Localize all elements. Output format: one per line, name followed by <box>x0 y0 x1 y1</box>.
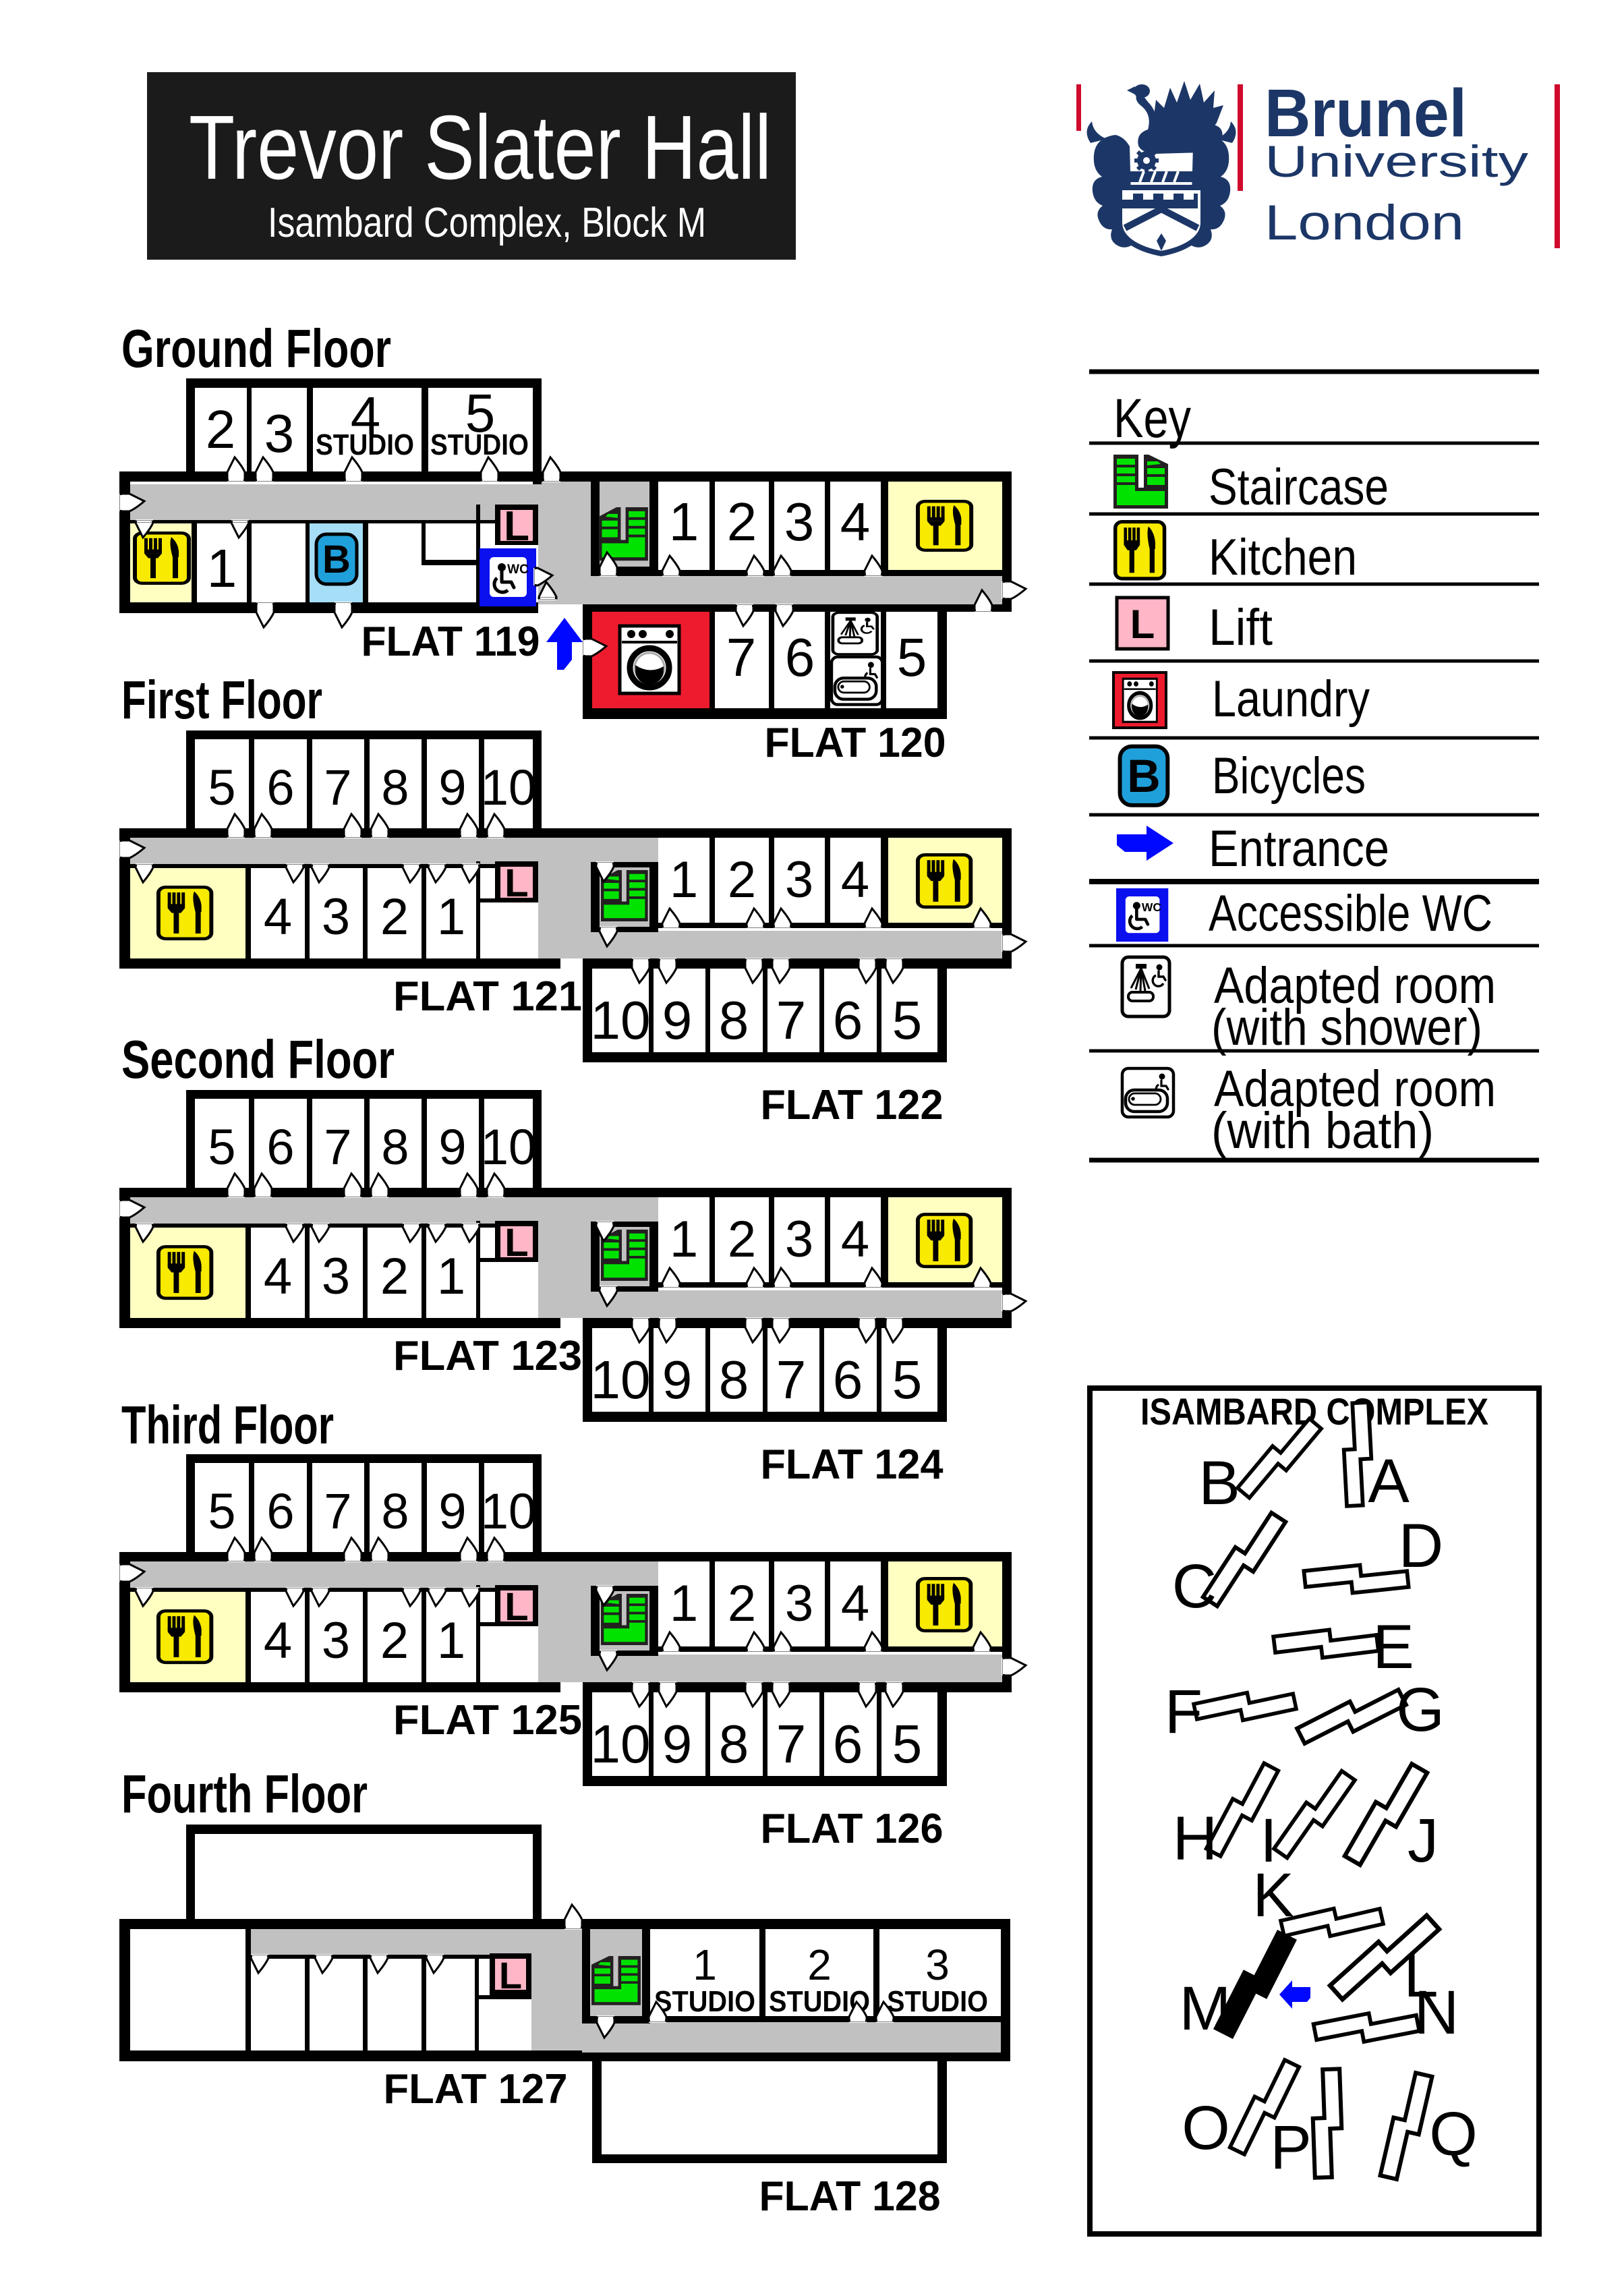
svg-text:L: L <box>1130 602 1155 647</box>
svg-text:7: 7 <box>324 1119 351 1175</box>
svg-text:Lift: Lift <box>1209 599 1273 656</box>
svg-text:10: 10 <box>481 759 536 815</box>
svg-text:2: 2 <box>807 1941 832 1989</box>
svg-text:Trevor Slater Hall: Trevor Slater Hall <box>189 96 772 198</box>
svg-text:D: D <box>1399 1512 1443 1580</box>
svg-text:4: 4 <box>841 1575 869 1632</box>
svg-text:L: L <box>499 1954 522 1997</box>
svg-text:1: 1 <box>437 1248 465 1305</box>
svg-text:J: J <box>1408 1806 1439 1875</box>
svg-text:10: 10 <box>591 990 651 1050</box>
svg-text:FLAT 122: FLAT 122 <box>761 1082 944 1128</box>
svg-text:2: 2 <box>380 888 409 946</box>
svg-text:Key: Key <box>1113 388 1191 449</box>
svg-text:FLAT 120: FLAT 120 <box>765 720 946 766</box>
svg-text:6: 6 <box>266 759 294 815</box>
svg-text:10: 10 <box>591 1350 651 1410</box>
svg-text:4: 4 <box>840 492 871 552</box>
svg-text:4: 4 <box>841 1211 869 1268</box>
svg-text:FLAT 126: FLAT 126 <box>761 1806 944 1852</box>
svg-text:Staircase: Staircase <box>1209 459 1389 516</box>
svg-text:(with shower): (with shower) <box>1211 999 1482 1056</box>
svg-text:STUDIO: STUDIO <box>654 1985 755 2018</box>
svg-text:FLAT 123: FLAT 123 <box>393 1333 582 1379</box>
svg-text:3: 3 <box>785 851 813 909</box>
svg-text:9: 9 <box>438 759 466 815</box>
svg-text:L: L <box>504 1585 528 1629</box>
svg-text:University: University <box>1265 136 1528 186</box>
svg-text:2: 2 <box>727 492 757 552</box>
svg-text:Kitchen: Kitchen <box>1209 529 1357 586</box>
svg-text:F: F <box>1165 1677 1202 1746</box>
svg-text:2: 2 <box>380 1612 409 1669</box>
svg-text:8: 8 <box>719 1714 749 1774</box>
svg-text:10: 10 <box>591 1714 651 1774</box>
svg-text:G: G <box>1396 1675 1445 1744</box>
svg-text:4: 4 <box>264 1612 292 1669</box>
svg-text:7: 7 <box>776 990 807 1050</box>
svg-text:FLAT 124: FLAT 124 <box>761 1441 944 1488</box>
svg-text:6: 6 <box>785 627 815 687</box>
svg-text:E: E <box>1372 1613 1414 1682</box>
svg-text:3: 3 <box>925 1941 950 1989</box>
svg-text:8: 8 <box>381 1483 409 1539</box>
svg-text:3: 3 <box>322 1248 350 1305</box>
svg-text:7: 7 <box>776 1350 807 1410</box>
svg-text:4: 4 <box>841 851 869 909</box>
svg-text:5: 5 <box>897 627 927 687</box>
svg-text:3: 3 <box>322 888 350 946</box>
svg-text:Fourth Floor: Fourth Floor <box>121 1764 368 1824</box>
svg-text:Second Floor: Second Floor <box>121 1029 395 1089</box>
svg-text:1: 1 <box>669 492 699 552</box>
svg-text:5: 5 <box>892 1714 923 1774</box>
svg-text:1: 1 <box>437 1612 465 1669</box>
svg-text:Laundry: Laundry <box>1212 670 1370 728</box>
svg-text:7: 7 <box>324 759 351 815</box>
svg-text:8: 8 <box>381 1119 409 1175</box>
svg-text:5: 5 <box>208 1483 235 1539</box>
svg-text:10: 10 <box>481 1483 536 1539</box>
svg-text:K: K <box>1252 1861 1294 1930</box>
svg-text:FLAT 125: FLAT 125 <box>393 1697 582 1744</box>
svg-text:2: 2 <box>728 1211 756 1268</box>
svg-text:5: 5 <box>892 1350 923 1410</box>
svg-text:9: 9 <box>438 1483 466 1539</box>
svg-text:L: L <box>504 1221 528 1265</box>
svg-text:O: O <box>1182 2094 1230 2162</box>
svg-text:6: 6 <box>833 1350 863 1410</box>
svg-text:8: 8 <box>381 759 409 815</box>
svg-text:1: 1 <box>437 888 465 946</box>
svg-text:H: H <box>1173 1804 1217 1873</box>
svg-text:2: 2 <box>728 1575 756 1632</box>
svg-text:7: 7 <box>776 1714 807 1774</box>
svg-text:3: 3 <box>322 1612 350 1669</box>
svg-text:9: 9 <box>662 990 693 1050</box>
svg-text:6: 6 <box>266 1483 294 1539</box>
svg-text:6: 6 <box>266 1119 294 1175</box>
svg-text:A: A <box>1368 1447 1410 1516</box>
svg-text:Q: Q <box>1429 2100 1478 2169</box>
svg-text:Bicycles: Bicycles <box>1212 747 1366 805</box>
svg-text:5: 5 <box>208 1119 235 1175</box>
svg-text:2: 2 <box>380 1248 409 1305</box>
svg-text:1: 1 <box>693 1941 717 1989</box>
svg-text:5: 5 <box>208 759 235 815</box>
svg-text:FLAT 127: FLAT 127 <box>384 2066 568 2113</box>
svg-text:London: London <box>1265 196 1464 250</box>
svg-text:Third Floor: Third Floor <box>121 1395 334 1455</box>
svg-text:B: B <box>1198 1449 1240 1518</box>
svg-text:3: 3 <box>264 403 295 463</box>
svg-text:9: 9 <box>662 1714 693 1774</box>
svg-text:8: 8 <box>719 1350 749 1410</box>
svg-text:L: L <box>504 503 529 550</box>
svg-text:6: 6 <box>833 990 863 1050</box>
svg-text:STUDIO: STUDIO <box>887 1985 988 2018</box>
svg-text:1: 1 <box>670 1211 698 1268</box>
svg-text:7: 7 <box>726 627 757 687</box>
svg-text:Ground Floor: Ground Floor <box>121 318 391 378</box>
svg-text:STUDIO: STUDIO <box>316 428 414 461</box>
svg-text:6: 6 <box>833 1714 863 1774</box>
svg-text:C: C <box>1172 1552 1217 1621</box>
svg-text:8: 8 <box>719 990 749 1050</box>
svg-text:9: 9 <box>662 1350 693 1410</box>
svg-text:(with bath): (with bath) <box>1211 1102 1434 1159</box>
svg-text:1: 1 <box>670 1575 698 1632</box>
svg-text:FLAT 121: FLAT 121 <box>393 973 582 1020</box>
svg-text:First Floor: First Floor <box>121 670 322 730</box>
svg-text:M: M <box>1180 1974 1231 2043</box>
svg-text:2: 2 <box>206 399 236 459</box>
svg-text:2: 2 <box>728 851 756 909</box>
svg-text:FLAT 119: FLAT 119 <box>361 619 540 665</box>
svg-text:3: 3 <box>784 492 815 552</box>
svg-text:7: 7 <box>324 1483 351 1539</box>
svg-text:N: N <box>1414 1978 1459 2047</box>
svg-text:Accessible WC: Accessible WC <box>1209 885 1492 942</box>
svg-text:4: 4 <box>264 1248 292 1305</box>
svg-text:Entrance: Entrance <box>1209 820 1389 878</box>
svg-text:L: L <box>504 861 528 905</box>
svg-text:10: 10 <box>481 1119 536 1175</box>
svg-text:FLAT 128: FLAT 128 <box>759 2173 941 2220</box>
svg-text:3: 3 <box>785 1575 813 1632</box>
svg-text:3: 3 <box>785 1211 813 1268</box>
svg-text:P: P <box>1270 2113 1311 2182</box>
svg-text:9: 9 <box>438 1119 466 1175</box>
svg-text:5: 5 <box>892 990 923 1050</box>
svg-text:1: 1 <box>670 851 698 909</box>
svg-text:Isambard Complex, Block M: Isambard Complex, Block M <box>268 200 706 246</box>
svg-text:STUDIO: STUDIO <box>430 428 529 461</box>
svg-text:4: 4 <box>264 888 292 946</box>
svg-text:1: 1 <box>207 538 237 598</box>
